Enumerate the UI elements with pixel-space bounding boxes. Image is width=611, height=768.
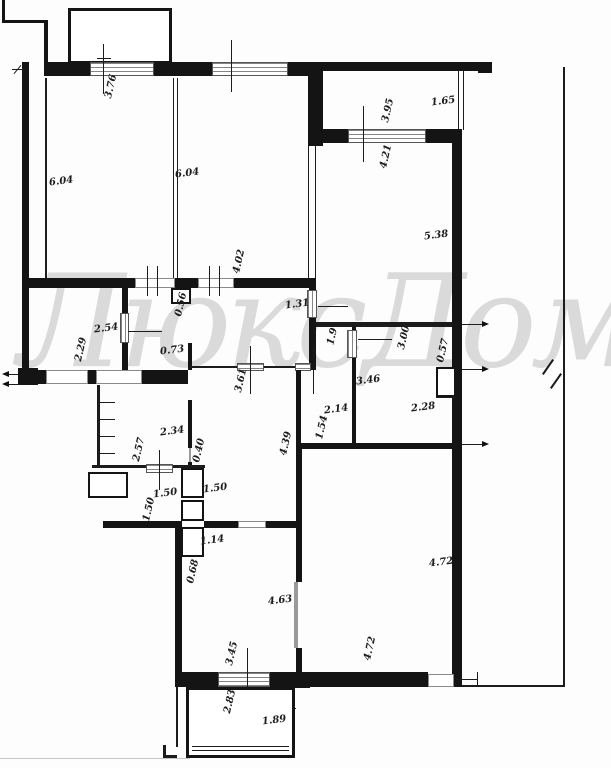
dimension-label: 0.68: [185, 558, 201, 584]
tick: [100, 436, 115, 437]
wall: [178, 672, 218, 687]
dimension-label: 2.57: [131, 436, 147, 462]
dimension-label: 4.21: [378, 143, 394, 169]
door-opening: [428, 674, 454, 687]
dimension-label: 6.04: [174, 167, 200, 181]
dimension-label: 2.29: [73, 336, 89, 362]
wall: [2, 20, 46, 23]
wall: [315, 146, 316, 283]
balcony-rail: [192, 746, 289, 747]
wall: [234, 278, 309, 288]
door-opening: [135, 278, 175, 288]
wall: [266, 521, 296, 528]
wall: [293, 682, 310, 688]
wall: [458, 70, 459, 130]
dimension-label: 0.40: [191, 437, 207, 463]
extension-line: [363, 106, 364, 162]
wall: [142, 370, 188, 384]
break-mark: [550, 373, 562, 389]
window: [218, 672, 270, 687]
wall: [296, 370, 301, 448]
arrowhead: [482, 366, 489, 372]
arrowhead: [482, 321, 489, 327]
dimension-label: 1.9: [325, 327, 340, 346]
dimension-label: 1.14: [199, 534, 225, 548]
extension-line: [157, 266, 158, 296]
extension-line: [219, 266, 220, 296]
leader-line: [318, 306, 348, 307]
boundary-line: [563, 67, 565, 687]
dimension-label: 1.50: [141, 496, 157, 522]
dimension-label: 2.28: [410, 401, 436, 415]
arrowhead: [482, 441, 489, 447]
extension-line: [313, 346, 314, 394]
window: [212, 62, 288, 76]
dimension-label: 5.38: [423, 229, 449, 243]
tick: [97, 58, 111, 59]
dimension-label: 2.34: [159, 425, 185, 439]
wall: [44, 20, 48, 64]
door-opening: [198, 278, 234, 288]
wall: [308, 146, 309, 283]
extension-line: [147, 266, 148, 296]
wall: [122, 343, 128, 370]
door-opening: [96, 370, 142, 384]
dimension-label: 3.46: [355, 374, 381, 388]
extension-line: [159, 450, 160, 490]
wall: [22, 62, 29, 372]
door-leaf: [294, 582, 298, 648]
extension-line: [103, 44, 104, 94]
section-mark: [478, 62, 492, 73]
break-mark: [542, 359, 554, 375]
dimension-label: 1.65: [430, 95, 456, 109]
arrowhead: [2, 381, 9, 387]
extension-line: [209, 266, 210, 296]
wall: [436, 397, 456, 398]
wall: [154, 62, 212, 76]
dimension-label: 4.02: [231, 248, 247, 274]
arrowhead: [2, 371, 9, 377]
dimension-label: 4.39: [278, 430, 294, 456]
door-opening: [46, 370, 88, 384]
dimension-tick: [456, 679, 478, 680]
window: [347, 330, 357, 358]
wall: [188, 400, 192, 448]
duct-shaft: [181, 468, 204, 498]
dimension-label: 3.45: [224, 640, 240, 666]
dimension-label: 3.00: [396, 324, 412, 350]
wall: [122, 284, 128, 313]
dimension-label: 1.54: [314, 414, 330, 440]
window: [120, 313, 129, 343]
balcony: [68, 8, 172, 64]
balcony-rail: [192, 750, 289, 751]
leader-line: [128, 331, 162, 332]
leader-line: [358, 339, 392, 340]
wall: [296, 448, 302, 582]
door-opening: [238, 521, 266, 528]
dimension-tick: [12, 69, 26, 70]
tick: [100, 402, 115, 403]
wall: [2, 0, 5, 22]
wall: [322, 129, 348, 143]
wall: [204, 521, 238, 528]
wall: [296, 443, 462, 449]
wall: [29, 370, 46, 384]
boundary-line: [462, 685, 565, 687]
dimension-label: 1.50: [202, 482, 228, 496]
dimension-label: 0.73: [159, 344, 185, 358]
window: [90, 62, 154, 76]
wall: [175, 278, 198, 288]
wall: [316, 322, 452, 327]
dimension-label: 4.63: [267, 594, 293, 608]
wall: [312, 62, 482, 71]
dimension-label: 3.95: [380, 97, 396, 123]
closet: [88, 472, 128, 498]
wall: [97, 385, 100, 467]
tick: [100, 419, 115, 420]
dimension-tick: [477, 672, 478, 685]
wall: [29, 278, 135, 288]
wall: [175, 521, 182, 687]
wall: [296, 648, 302, 674]
wall: [173, 78, 174, 280]
dimension-label: 2.54: [93, 322, 119, 336]
duct-shaft: [181, 500, 204, 521]
tick: [100, 453, 115, 454]
wall: [176, 687, 178, 747]
duct-shaft: [436, 367, 456, 397]
dimension-label: 3.61: [233, 367, 249, 393]
dimension-label: 2.14: [323, 403, 349, 417]
wall: [308, 62, 323, 146]
dimension-label: 0.57: [435, 337, 451, 363]
extension-line: [231, 40, 232, 92]
dimension-label: 4.72: [428, 556, 454, 570]
wall: [463, 70, 464, 130]
floor-plan: ЛюксДом: [0, 0, 611, 768]
wall: [45, 78, 47, 284]
ground-line: [0, 758, 190, 759]
window: [348, 129, 426, 143]
wall: [452, 129, 462, 687]
dimension-label: 3.76: [103, 73, 119, 99]
wall: [44, 62, 90, 76]
extension-line: [250, 346, 251, 394]
wall: [103, 521, 181, 528]
dimension-label: 4.72: [362, 635, 378, 661]
dimension-label: 6.04: [48, 175, 74, 189]
wall: [88, 370, 96, 384]
